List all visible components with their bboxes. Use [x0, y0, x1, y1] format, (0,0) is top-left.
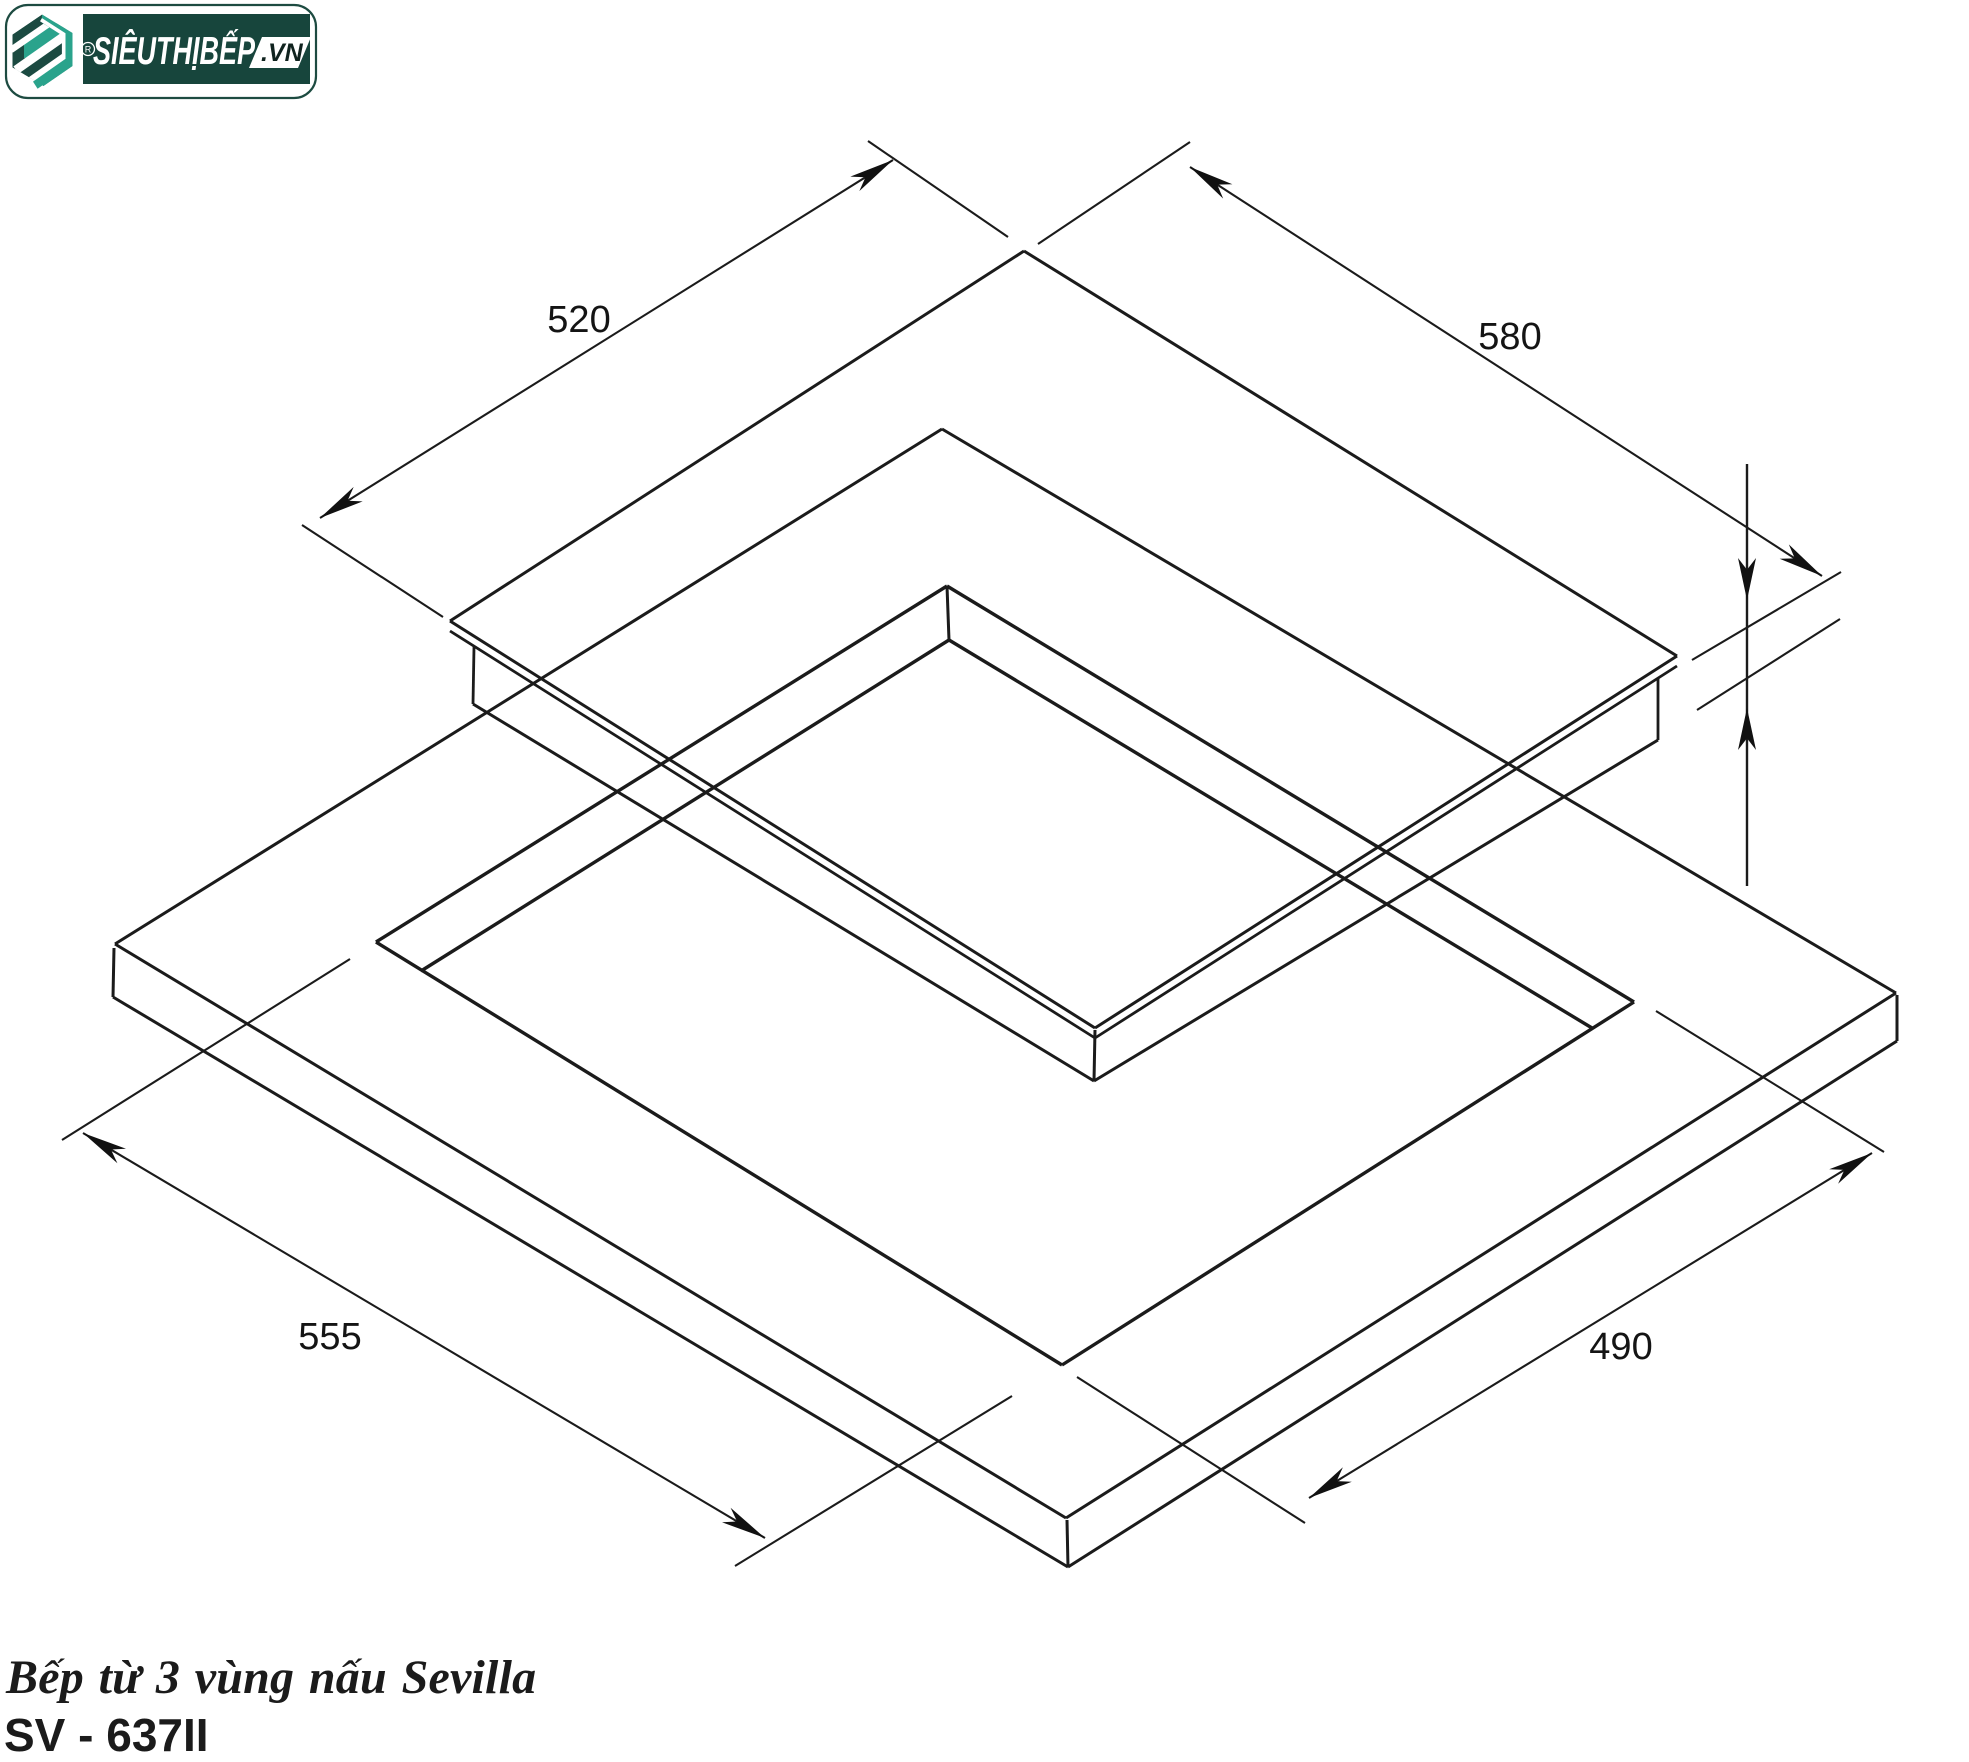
- svg-text:.VN: .VN: [261, 39, 304, 67]
- svg-text:580: 580: [1478, 316, 1541, 358]
- svg-text:555: 555: [298, 1316, 361, 1358]
- svg-text:520: 520: [547, 299, 610, 341]
- svg-text:SIÊUTHỊBẾP: SIÊUTHỊBẾP: [93, 29, 256, 73]
- svg-text:490: 490: [1589, 1326, 1652, 1368]
- svg-text:R: R: [85, 45, 92, 55]
